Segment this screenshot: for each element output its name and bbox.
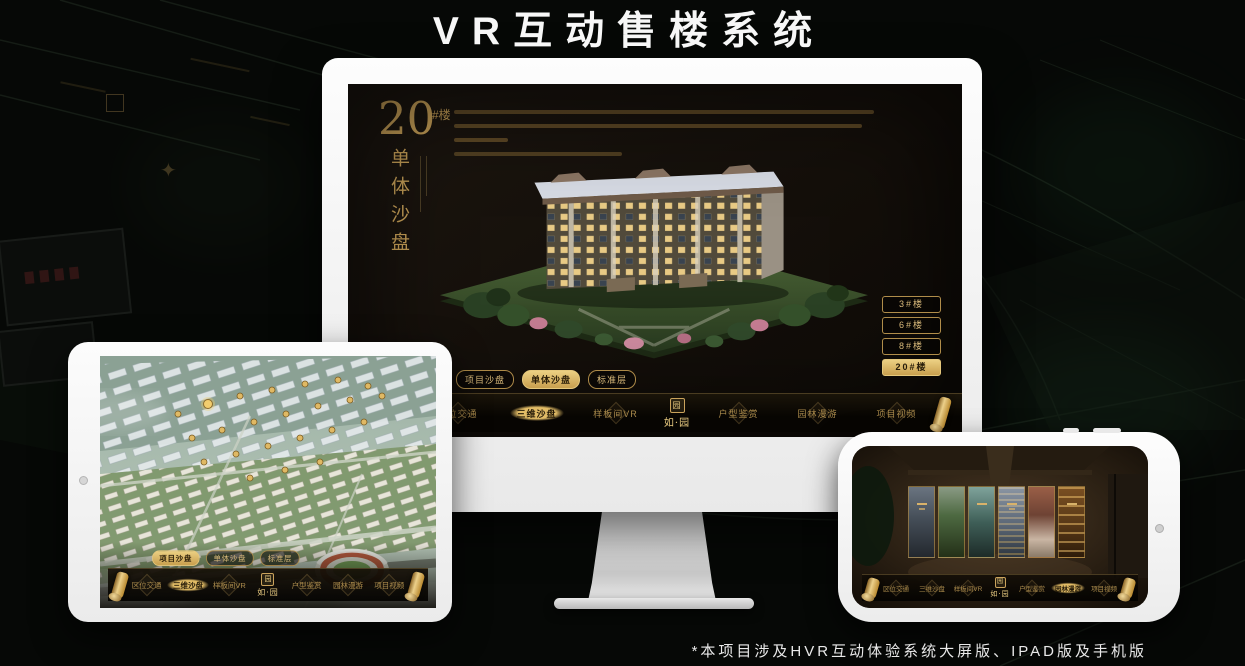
nav-item-showroom-vr[interactable]: 样板间VR [209, 580, 250, 591]
floor-button-6[interactable]: 6#楼 [882, 317, 941, 334]
brand-name: 如·园 [990, 589, 1009, 599]
tab-single-sandtable[interactable]: 单体沙盘 [206, 550, 254, 566]
nav-item-showroom-vr[interactable]: 样板间VR [576, 407, 655, 420]
brand-logo: 园 如·园 [250, 573, 286, 598]
tablet-navbar: 区位交通 三维沙盘 样板间VR 园 如·园 户型鉴赏 园林漫游 项目视频 [108, 568, 428, 601]
tab-project-sandtable[interactable]: 项目沙盘 [456, 370, 514, 389]
building-number: 20 [378, 92, 435, 145]
map-green-area [1020, 90, 1220, 250]
phone-screen: 区位交通 三维沙盘 样板间VR 园 如·园 户型鉴赏 园林漫游 项目视频 [852, 446, 1148, 608]
monitor-base [554, 598, 754, 609]
nav-item-garden-tour[interactable]: 园林漫游 [1050, 583, 1086, 593]
tab-project-sandtable[interactable]: 项目沙盘 [152, 550, 200, 566]
nav-item-garden-tour[interactable]: 园林漫游 [778, 407, 857, 420]
volume-button [1063, 428, 1079, 433]
mode-tabs: 项目沙盘 单体沙盘 标准层 [456, 370, 636, 389]
power-button [1093, 428, 1121, 433]
nav-item-location[interactable]: 区位交通 [126, 580, 167, 591]
phone-navbar: 区位交通 三维沙盘 样板间VR 园 如·园 户型鉴赏 园林漫游 项目视频 [862, 574, 1138, 601]
seal-icon: 园 [670, 398, 685, 413]
tablet-device: 项目沙盘 单体沙盘 标准层 区位交通 三维沙盘 样板间VR 园 如·园 户型鉴赏… [68, 342, 452, 622]
nav-item-3d-sandtable[interactable]: 三维沙盘 [167, 580, 208, 591]
nav-item-project-video[interactable]: 项目视频 [1086, 583, 1122, 593]
building-model[interactable] [428, 156, 880, 368]
nav-item-3d-sandtable[interactable]: 三维沙盘 [497, 407, 576, 420]
gallery-item[interactable] [938, 486, 965, 558]
phone-device: 区位交通 三维沙盘 样板间VR 园 如·园 户型鉴赏 园林漫游 项目视频 [838, 432, 1180, 622]
nav-item-3d-sandtable[interactable]: 三维沙盘 [914, 583, 950, 593]
floor-button-20[interactable]: 20#楼 [882, 359, 941, 376]
page-title: VR互动售楼系统 [0, 0, 1245, 56]
gallery-item[interactable] [998, 486, 1025, 558]
tab-standard-floor[interactable]: 标准层 [588, 370, 636, 389]
gallery-item[interactable] [968, 486, 995, 558]
map-park-area [130, 120, 310, 250]
tablet-screen: 项目沙盘 单体沙盘 标准层 区位交通 三维沙盘 样板间VR 园 如·园 户型鉴赏… [100, 356, 436, 608]
nav-item-unit-plans[interactable]: 户型鉴赏 [1014, 583, 1050, 593]
seal-icon: 园 [995, 577, 1006, 588]
brand-name: 如·园 [257, 587, 279, 598]
subtitle-divider [420, 156, 421, 212]
camera-icon [79, 476, 88, 485]
scroll-icon[interactable] [1119, 577, 1136, 600]
footnote: *本项目涉及HVR互动体验系统大屏版、IPAD版及手机版 [692, 640, 1147, 661]
building-number-suffix: #楼 [432, 106, 451, 123]
nav-item-unit-plans[interactable]: 户型鉴赏 [699, 407, 778, 420]
brand-name: 如·园 [664, 414, 690, 429]
nav-item-project-video[interactable]: 项目视频 [857, 407, 936, 420]
subtitle-divider [426, 156, 427, 196]
background-plaque [0, 228, 132, 327]
seal-icon: 园 [261, 573, 274, 586]
nav-item-garden-tour[interactable]: 园林漫游 [327, 580, 368, 591]
nav-item-unit-plans[interactable]: 户型鉴赏 [286, 580, 327, 591]
gallery-item[interactable] [908, 486, 935, 558]
camera-icon [1155, 524, 1164, 533]
nav-item-project-video[interactable]: 项目视频 [369, 580, 410, 591]
brand-logo: 园 如·园 [655, 398, 699, 429]
tab-standard-floor[interactable]: 标准层 [260, 550, 299, 566]
stage: ✦ VR互动售楼系统 20 #楼 单体沙盘 [0, 0, 1245, 666]
nav-item-showroom-vr[interactable]: 样板间VR [950, 583, 986, 593]
tab-single-sandtable[interactable]: 单体沙盘 [522, 370, 580, 389]
monitor-stand [588, 511, 716, 601]
brand-logo: 园 如·园 [986, 577, 1014, 599]
gallery-item[interactable] [1058, 486, 1085, 558]
scene-gallery [908, 486, 1085, 558]
floor-button-8[interactable]: 8#楼 [882, 338, 941, 355]
nav-item-location[interactable]: 区位交通 [878, 583, 914, 593]
floor-button-3[interactable]: 3#楼 [882, 296, 941, 313]
tablet-mode-tabs: 项目沙盘 单体沙盘 标准层 [152, 550, 300, 566]
screen-subtitle: 单体沙盘 [386, 148, 413, 260]
compass-star-icon: ✦ [160, 158, 177, 183]
floor-button-group: 3#楼 6#楼 8#楼 20#楼 [882, 296, 941, 376]
gallery-item[interactable] [1028, 486, 1055, 558]
map-logo-mark [106, 94, 124, 112]
